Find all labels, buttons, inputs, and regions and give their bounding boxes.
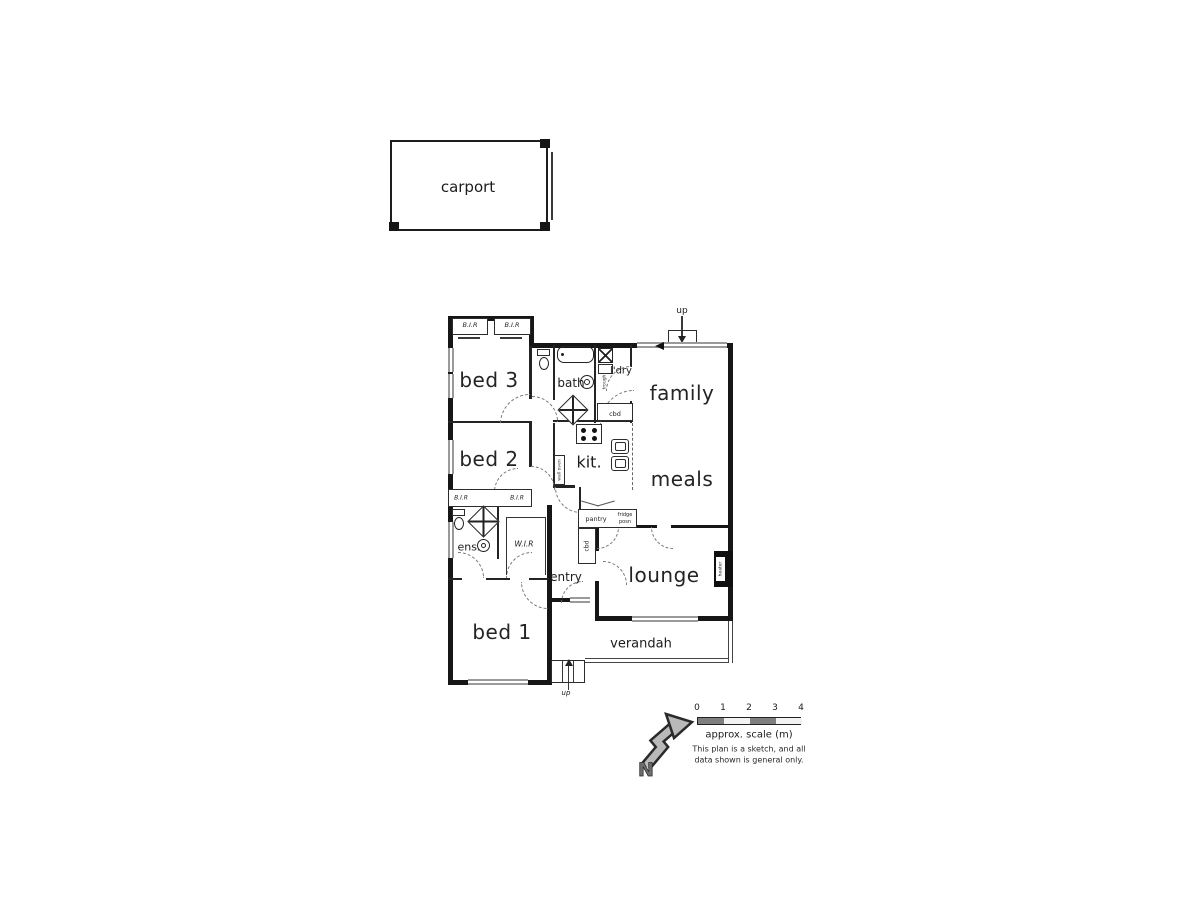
wc-tank-icon bbox=[537, 349, 550, 356]
scale-tick-3: 3 bbox=[772, 703, 778, 713]
scale-note-2: data shown is general only. bbox=[694, 756, 803, 765]
scale-tick-2: 2 bbox=[746, 703, 752, 713]
door-arc-meals-opening bbox=[651, 527, 673, 549]
door-arc-bed3 bbox=[500, 394, 530, 424]
door-arc-lounge-opening bbox=[597, 527, 619, 549]
sink-bowl-bottom-inner bbox=[615, 459, 626, 468]
hall-cupboard-label: cbd bbox=[584, 541, 591, 552]
laundry-cupboard-label: cbd bbox=[609, 410, 621, 418]
bed3-label: bed 3 bbox=[459, 368, 518, 392]
bed2-label: bed 2 bbox=[459, 447, 518, 471]
wall-bath-left bbox=[553, 345, 555, 400]
bed1-label: bed 1 bbox=[472, 620, 531, 644]
door-arc-entry-right bbox=[603, 561, 627, 585]
scale-tick-4: 4 bbox=[798, 703, 804, 713]
window-bed1 bbox=[468, 679, 528, 685]
window-bed3-b bbox=[448, 374, 454, 398]
family-label: family bbox=[650, 381, 715, 405]
wall-bed2-right-upper bbox=[529, 423, 532, 467]
verandah-bottom-line bbox=[585, 658, 733, 663]
bed3-robe-left-door bbox=[458, 337, 480, 339]
scale-note-1: This plan is a sketch, and all bbox=[692, 745, 805, 754]
scale-bar bbox=[697, 717, 801, 725]
scale-seg-2 bbox=[724, 718, 750, 724]
pantry-v1 bbox=[581, 501, 599, 507]
verandah-right-line bbox=[728, 621, 733, 663]
bed3-robe-right-label: B.I.R bbox=[504, 321, 519, 329]
scale-seg-1 bbox=[698, 718, 724, 724]
scale-caption: approx. scale (m) bbox=[705, 730, 792, 741]
fridge-label-line2: posn bbox=[619, 519, 631, 525]
door-arc-bed1 bbox=[521, 582, 548, 609]
heater-label: heater bbox=[719, 562, 724, 577]
bed2-robe-right-label: B.I.R bbox=[510, 495, 524, 502]
stairs-arrow-head bbox=[565, 659, 573, 666]
north-arrow-icon: N bbox=[636, 710, 698, 778]
wall-oven-label: wall oven bbox=[558, 459, 563, 480]
wall-lounge-left-lower bbox=[595, 581, 599, 621]
ens-shower-icon bbox=[467, 505, 500, 538]
kit-meals-dashed-line bbox=[632, 423, 633, 490]
bath-basin-inner bbox=[584, 379, 590, 385]
door-arc-bed2 bbox=[531, 466, 555, 490]
entry-label: entry bbox=[550, 570, 582, 584]
svg-text:N: N bbox=[638, 759, 654, 778]
cooktop-burner-1 bbox=[581, 428, 586, 433]
carport-corner-br bbox=[540, 222, 550, 231]
bed3-robe-right-door bbox=[500, 337, 522, 339]
bed2-robe-left-label: B.I.R bbox=[454, 495, 468, 502]
wall-bed1-top-a bbox=[448, 578, 462, 580]
wall-ens-wir bbox=[497, 507, 499, 559]
cooktop-icon bbox=[576, 424, 602, 444]
floor-plan-canvas: carport B.I.R bbox=[0, 0, 1200, 900]
window-lounge bbox=[632, 616, 698, 622]
carport-label: carport bbox=[441, 178, 495, 196]
wall-lounge-meals-right bbox=[671, 525, 733, 528]
carport-corner-tr bbox=[540, 139, 550, 148]
entry-front-door bbox=[570, 597, 590, 603]
wall-bath-ldry bbox=[594, 345, 596, 423]
ldry-label: l'dry bbox=[610, 366, 632, 377]
window-bed2 bbox=[448, 440, 454, 474]
slider-arrow-icon bbox=[655, 342, 664, 350]
laundry-trough-icon bbox=[598, 348, 613, 363]
pantry-v2 bbox=[597, 501, 615, 507]
window-bed3-a bbox=[448, 348, 454, 372]
kit-label: kit. bbox=[576, 453, 601, 472]
bath-label: bath bbox=[557, 376, 584, 390]
scale-tick-0: 0 bbox=[694, 703, 700, 713]
wall-bed1-top-b bbox=[486, 578, 510, 580]
ens-basin-inner bbox=[481, 543, 486, 548]
scale-seg-3 bbox=[750, 718, 776, 724]
up-bottom-label: up bbox=[562, 689, 571, 697]
wir-label: W.I.R bbox=[515, 540, 534, 549]
cooktop-burner-3 bbox=[581, 436, 586, 441]
door-arc-ens bbox=[458, 552, 484, 578]
pantry-label: pantry bbox=[585, 515, 606, 523]
wall-ldry-right-upper bbox=[630, 345, 632, 367]
sink-bowl-top-inner bbox=[615, 442, 626, 451]
cooktop-burner-4 bbox=[592, 436, 597, 441]
bathtub-tap-icon bbox=[561, 353, 564, 356]
bed3-robe-left-label: B.I.R bbox=[462, 321, 477, 329]
wall-bed3-right bbox=[529, 346, 532, 399]
ens-wc-tank-icon bbox=[452, 509, 465, 516]
carport-gutter-line bbox=[551, 152, 553, 220]
verandah-label: verandah bbox=[610, 637, 672, 652]
wall-bed1-top-c bbox=[529, 578, 549, 580]
cooktop-burner-2 bbox=[592, 428, 597, 433]
meals-label: meals bbox=[651, 467, 714, 491]
ens-wc-bowl-icon bbox=[454, 517, 464, 530]
up-top-label: up bbox=[676, 306, 687, 316]
scale-seg-4 bbox=[776, 718, 802, 724]
window-family-slider bbox=[637, 342, 727, 348]
carport-corner-bl bbox=[389, 222, 399, 231]
laundry-trough-label: trough bbox=[603, 375, 608, 390]
lounge-label: lounge bbox=[628, 563, 699, 587]
ens-label: ens. bbox=[458, 541, 481, 554]
window-ens bbox=[448, 522, 454, 558]
scale-tick-1: 1 bbox=[720, 703, 726, 713]
wc-bowl-icon bbox=[539, 357, 549, 370]
fridge-label-line1: fridge bbox=[618, 512, 633, 518]
